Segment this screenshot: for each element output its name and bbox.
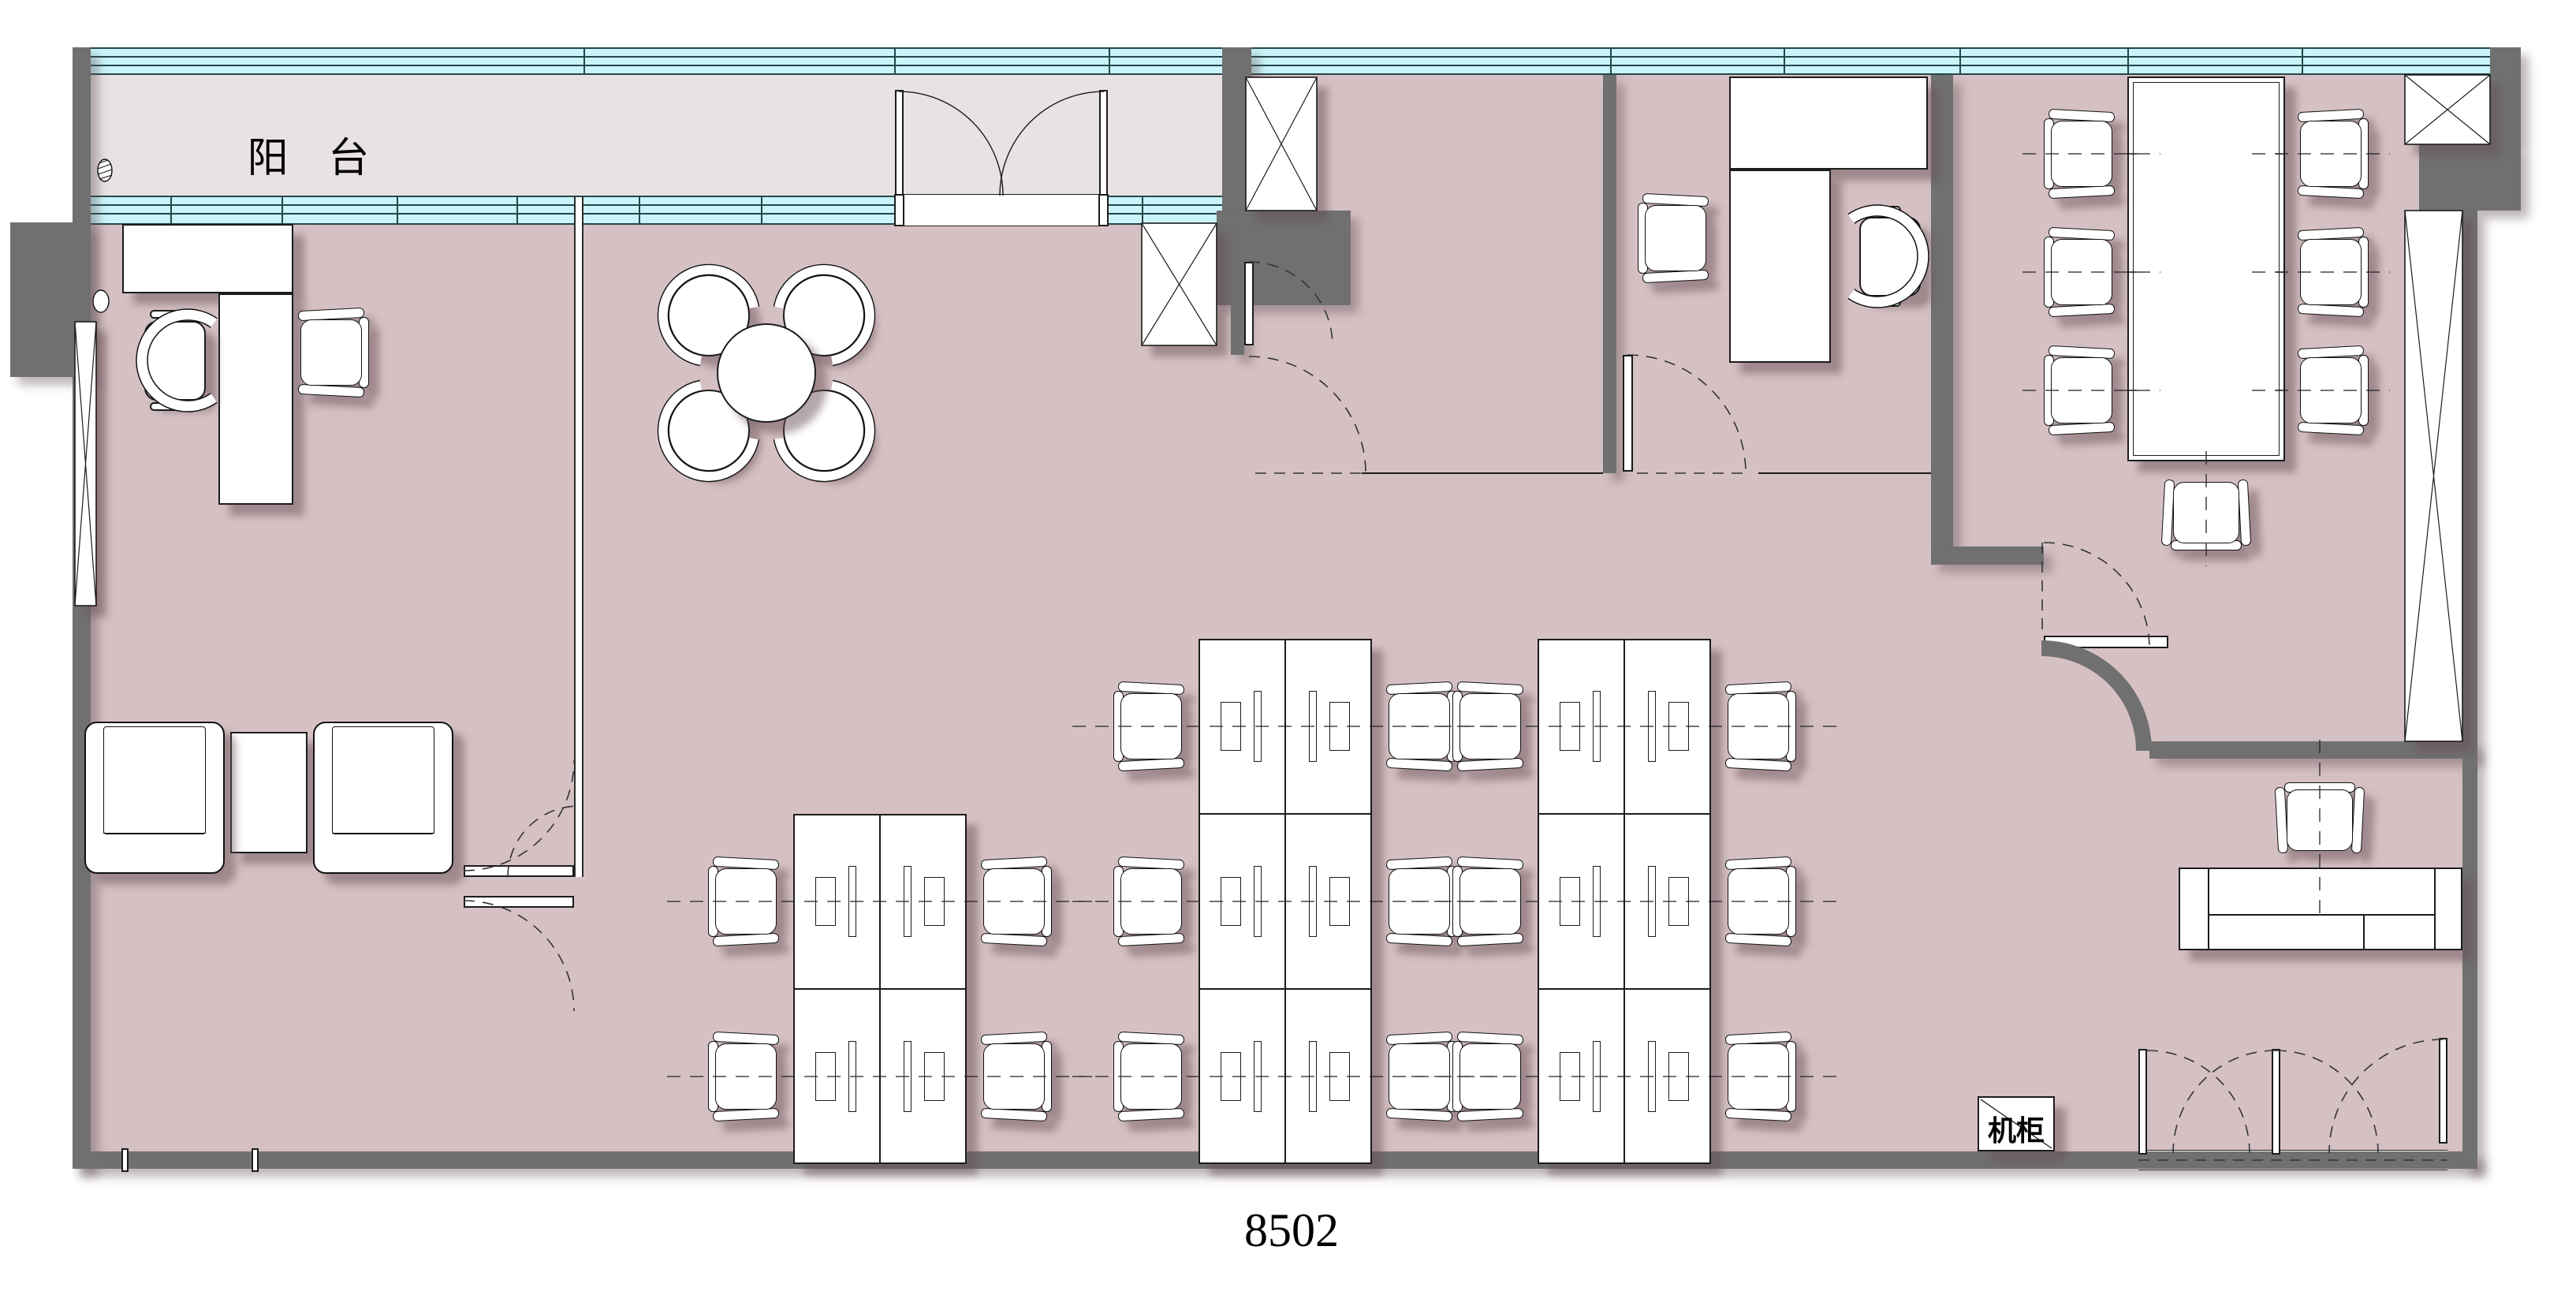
tub-chair-back-edge	[784, 274, 864, 355]
tub-chair-back-edge	[668, 274, 748, 355]
door-swing-dashed	[1249, 356, 1366, 473]
door-swing-dashed	[2173, 1050, 2276, 1153]
tub-chair-back-edge	[668, 390, 748, 471]
door-swing-dashed	[464, 760, 574, 871]
wall-curved	[2041, 648, 2144, 751]
shaft-top-right	[2405, 75, 2490, 144]
door-swing-dashed	[2329, 1039, 2443, 1153]
office1-exec-chair-back	[142, 315, 214, 406]
unit-number-label: 8502	[1173, 1203, 1410, 1258]
tub-chair-back	[779, 270, 870, 360]
floor-plan-8502: 阳 台 8502 机柜	[0, 0, 2576, 1306]
tub-chair-back	[663, 386, 754, 476]
cabinet-office2	[1246, 77, 1317, 211]
cabinet-left	[75, 322, 96, 606]
door-swing-solid	[899, 91, 1003, 196]
tub-chair-back	[779, 386, 870, 476]
door-swing-dashed	[2044, 543, 2149, 648]
office3-exec-chair-back	[1851, 211, 1923, 302]
door-swing-dashed	[1249, 262, 1333, 345]
column-plain	[93, 290, 109, 312]
tub-chair-back	[663, 270, 754, 360]
door-swing-dashed	[2147, 1050, 2250, 1153]
shaft-right	[2405, 211, 2462, 741]
cabinet-lounge	[1142, 223, 1217, 345]
overlay-svg	[0, 0, 2576, 1306]
door-swing-solid	[1000, 91, 1104, 196]
door-swing-dashed	[464, 901, 574, 1011]
door-swing-dashed	[1627, 355, 1746, 473]
tub-chair-back-edge	[784, 390, 864, 471]
door-swing-dashed	[508, 806, 579, 877]
door-swing-dashed	[2276, 1050, 2378, 1153]
server-cabinet-label: 机柜	[1969, 1108, 2063, 1149]
balcony-label: 阳 台	[221, 125, 410, 184]
